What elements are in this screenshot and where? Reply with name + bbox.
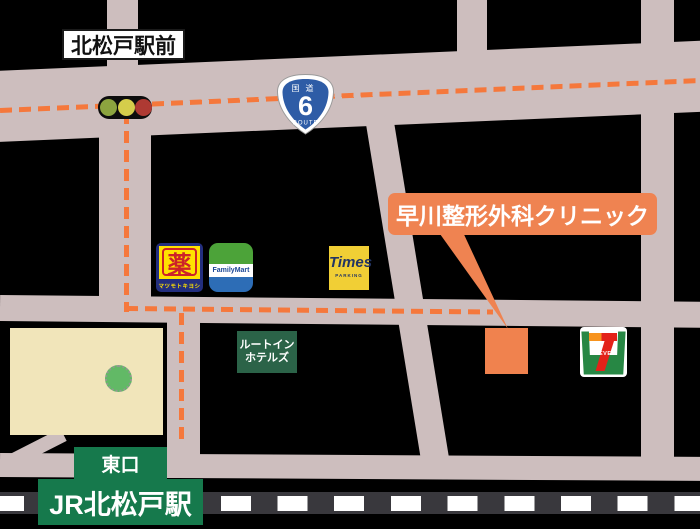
traffic-light-green — [100, 99, 117, 116]
seven-eleven-icon: ELEVEN — [580, 327, 627, 377]
clinic-building-marker — [485, 328, 528, 374]
familymart-wordmark: FamilyMart — [209, 264, 253, 277]
route-dash-north-road — [124, 112, 129, 312]
traffic-light-red — [135, 99, 152, 116]
clinic-name-label: 早川整形外科クリニック — [388, 193, 657, 235]
matsukiyo-drugstore-icon: 薬 マツモトキヨシ — [156, 243, 203, 292]
access-map: 国道 6 ROUTE 北松戸駅前 薬 マツモトキヨシ FamilyMart Ti… — [0, 0, 700, 529]
shield-number-text: 6 — [298, 91, 313, 121]
route-dash-station-road — [179, 313, 184, 445]
route-6-shield-icon: 国道 6 ROUTE — [275, 72, 336, 136]
times-wordmark: Times — [329, 254, 369, 271]
station-plaza — [10, 328, 163, 435]
seven-eleven-seven-bar — [589, 333, 617, 341]
intersection-name-label: 北松戸駅前 — [62, 29, 185, 60]
traffic-light-yellow — [118, 99, 135, 116]
east-exit-label: 東口 — [74, 447, 167, 479]
station-name-label: JR北松戸駅 — [38, 479, 203, 525]
road-station-vertical — [167, 300, 200, 478]
road-diagonal — [365, 115, 450, 472]
route-inn-line2: ホテルズ — [245, 352, 289, 365]
times-parking-caption: PARKING — [329, 273, 369, 278]
route-inn-line1: ルートイン — [240, 339, 295, 352]
route-inn-hotel-icon: ルートイン ホテルズ — [237, 331, 297, 373]
matsukiyo-kusuri-symbol: 薬 — [162, 248, 197, 276]
shield-route-text: ROUTE — [293, 121, 319, 127]
matsukiyo-caption: マツモトキヨシ — [156, 282, 203, 290]
road-stub-top — [457, 0, 487, 65]
plaza-rotary-icon — [105, 365, 132, 392]
traffic-light-icon — [98, 96, 152, 119]
familymart-green-band — [209, 243, 253, 264]
familymart-blue-band — [209, 277, 253, 292]
times-parking-icon: Times PARKING — [329, 246, 369, 290]
seven-eleven-eleven-text: ELEVEN — [580, 351, 627, 357]
road-east-vertical — [641, 0, 674, 470]
familymart-icon: FamilyMart — [209, 243, 253, 292]
